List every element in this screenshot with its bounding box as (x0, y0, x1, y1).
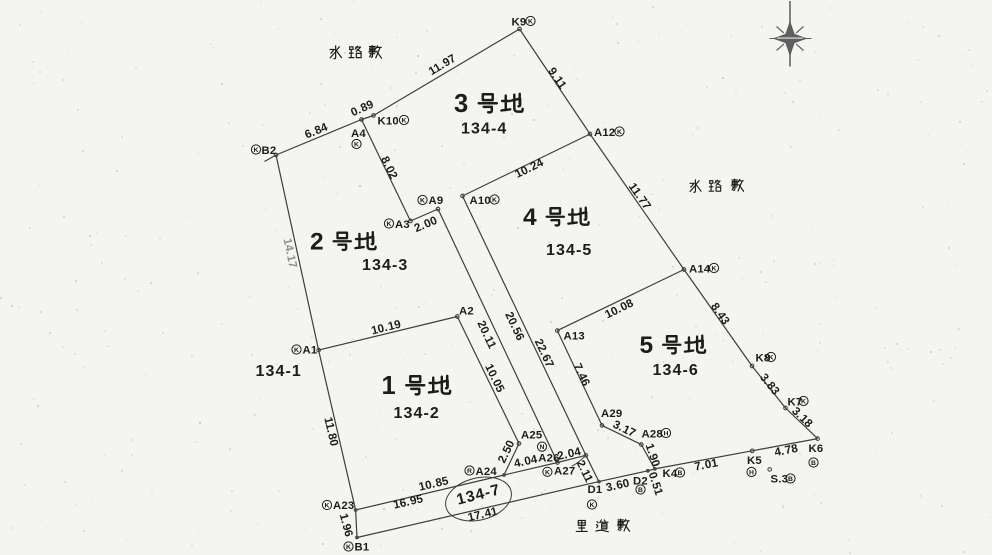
svg-text:2: 2 (310, 228, 324, 255)
svg-text:K: K (492, 197, 497, 204)
svg-text:S.3: S.3 (771, 474, 789, 486)
svg-text:K: K (801, 399, 806, 406)
svg-text:H: H (664, 431, 669, 438)
svg-text:B: B (638, 487, 643, 494)
svg-text:D1: D1 (588, 484, 603, 496)
svg-text:A29: A29 (601, 408, 622, 420)
svg-text:A10: A10 (470, 195, 491, 207)
svg-text:A3: A3 (395, 219, 410, 231)
svg-text:A28: A28 (642, 429, 663, 441)
svg-text:5: 5 (640, 332, 654, 359)
svg-text:134-3: 134-3 (362, 257, 408, 274)
svg-text:K6: K6 (809, 443, 824, 455)
svg-text:A25: A25 (521, 430, 542, 442)
svg-text:A14: A14 (689, 264, 711, 276)
svg-text:A2: A2 (459, 306, 474, 318)
svg-text:K: K (712, 266, 717, 273)
svg-text:K: K (387, 221, 392, 228)
svg-text:K: K (545, 469, 550, 476)
svg-text:N: N (540, 444, 545, 451)
svg-text:K: K (294, 347, 299, 354)
svg-text:K: K (402, 118, 407, 125)
svg-text:4: 4 (523, 204, 537, 231)
svg-text:H: H (749, 470, 754, 477)
svg-text:R: R (467, 468, 472, 475)
svg-text:K: K (528, 19, 533, 26)
svg-text:B: B (678, 470, 683, 477)
svg-text:A24: A24 (476, 466, 498, 478)
svg-text:A4: A4 (351, 128, 366, 140)
svg-text:K: K (420, 198, 425, 205)
svg-text:134-1: 134-1 (256, 363, 302, 380)
svg-text:134-6: 134-6 (653, 362, 699, 379)
svg-text:K5: K5 (747, 455, 762, 467)
svg-text:B: B (811, 460, 816, 467)
svg-text:134-4: 134-4 (461, 121, 507, 138)
svg-text:1: 1 (382, 372, 396, 400)
svg-text:A13: A13 (564, 331, 585, 343)
svg-text:K: K (769, 355, 774, 362)
svg-text:K: K (346, 544, 351, 551)
svg-text:134-2: 134-2 (394, 405, 440, 422)
svg-text:K: K (325, 503, 330, 510)
svg-text:3: 3 (454, 90, 468, 118)
svg-text:A1: A1 (303, 345, 318, 357)
svg-text:A27: A27 (554, 466, 575, 478)
svg-text:A9: A9 (429, 195, 444, 207)
svg-text:B2: B2 (262, 145, 277, 157)
svg-text:B: B (788, 476, 793, 483)
svg-text:K: K (617, 129, 622, 136)
svg-text:K: K (590, 502, 595, 509)
svg-text:134-5: 134-5 (546, 242, 592, 259)
svg-text:B1: B1 (355, 542, 370, 554)
svg-text:K9: K9 (512, 17, 527, 29)
svg-text:K: K (254, 147, 259, 154)
svg-text:K: K (354, 142, 359, 149)
svg-text:K10: K10 (378, 116, 399, 128)
svg-text:A26: A26 (538, 453, 559, 465)
svg-text:A12: A12 (594, 127, 615, 139)
svg-text:A23: A23 (333, 500, 354, 512)
svg-text:D2: D2 (633, 476, 648, 488)
